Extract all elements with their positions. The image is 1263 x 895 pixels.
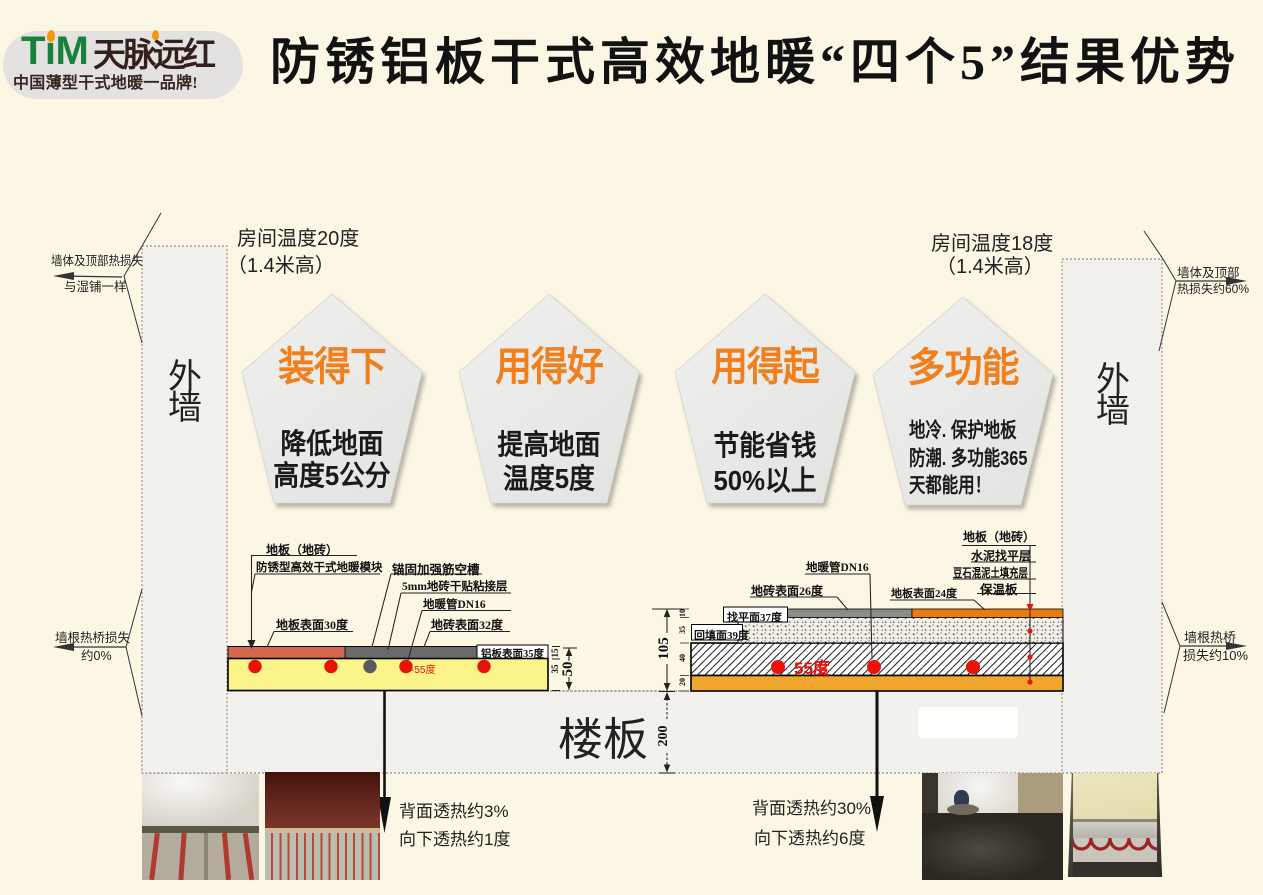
svg-text:105: 105 — [656, 637, 672, 660]
svg-text:50: 50 — [560, 662, 576, 677]
svg-text:200: 200 — [656, 726, 671, 747]
svg-text:20: 20 — [678, 678, 687, 686]
svg-text:35: 35 — [550, 664, 560, 674]
svg-text:10: 10 — [678, 609, 687, 617]
svg-text:15: 15 — [550, 648, 560, 658]
svg-text:40: 40 — [678, 654, 687, 662]
svg-text:35: 35 — [678, 626, 687, 634]
